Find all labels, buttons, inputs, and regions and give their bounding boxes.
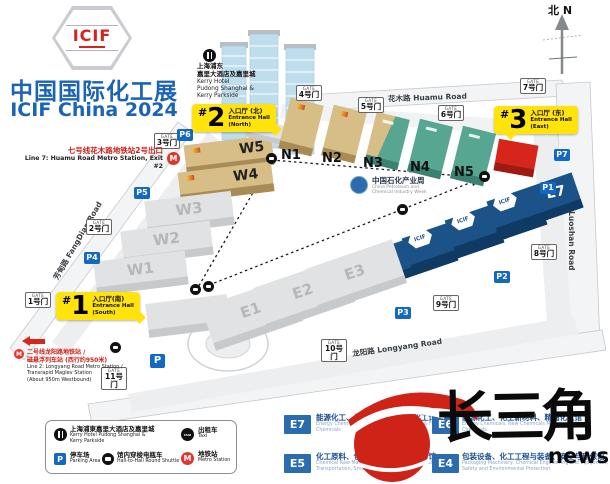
roof-logo <box>339 110 348 117</box>
roof-logo <box>192 147 201 153</box>
legend-taxi-en: Taxi <box>198 434 218 440</box>
hall-label-n4: N4 <box>405 160 435 175</box>
logo-line-bottom <box>66 50 118 51</box>
gate-number: 4号门 <box>297 91 321 99</box>
gate-2: GATE2号门 <box>86 219 112 235</box>
hall-label-n3: N3 <box>358 156 388 171</box>
hall-label: W3 <box>175 198 204 219</box>
gate-5: GATE5号门 <box>358 97 384 113</box>
compass <box>543 14 583 74</box>
entrance-en2: (South) <box>92 310 134 316</box>
legend-shuttle-en: Hall-to-Hall Round Shuttle <box>117 459 179 465</box>
parking-p3: P3 <box>395 307 411 319</box>
gate-10: GATE10号门 <box>321 339 347 362</box>
legend-metro-en: Metro Station <box>198 458 230 464</box>
hall-legend-badge-e5: E5 <box>284 454 311 473</box>
shuttle-stop-icon <box>397 204 408 215</box>
compass-label: 北 N <box>548 2 572 18</box>
metro-icon: M <box>14 349 24 359</box>
kerry-en3: Kerry Parkside <box>197 93 263 100</box>
legend-box: 上海浦東嘉里大酒店及嘉里城 Kerry Hotel Pudong Shangha… <box>45 420 237 474</box>
entrance-number: 1 <box>71 295 89 317</box>
gate-number: 8号门 <box>532 250 556 258</box>
entrance-1-label: # 1 入口厅(南) Entrance Hall (South) <box>56 292 140 320</box>
parking-p4: P4 <box>84 252 100 264</box>
metro-icon: M <box>181 452 194 465</box>
hall-label: W2 <box>152 228 181 249</box>
taxi-icon: TAXI <box>181 428 194 441</box>
venue-map: ICIF 中国国际化工展 ICIF China 2024 七号线花木路地铁站2号… <box>0 0 610 484</box>
hall-label: W5 <box>238 139 265 158</box>
entrance-hash: # <box>500 109 509 120</box>
petro-cn: 中国石化产业周 <box>372 176 427 185</box>
hall-label: W1 <box>126 258 155 279</box>
kerry-note: 上海浦东 嘉里大酒店及嘉里城 Kerry Hotel Pudong Shangh… <box>197 44 263 100</box>
metro-icon: M <box>167 152 180 165</box>
shuttle-stop-icon <box>266 153 277 164</box>
roof-logo <box>186 175 195 181</box>
roof-logo <box>469 133 480 138</box>
line2-note: M 二号线龙阳路地铁站 / 磁悬浮列车站 (西行约950米) Line 2: L… <box>14 336 123 383</box>
kerry-en2: Pudong Shanghai & <box>197 86 263 93</box>
gate-1: GATE1号门 <box>25 292 51 308</box>
parking-icon: P <box>54 453 66 465</box>
parking-p1: P1 <box>540 182 556 194</box>
line2-en3: (About 950m Westbound) <box>27 377 123 383</box>
entrance-hall-east-building <box>494 139 539 177</box>
shuttle-stop-icon <box>190 284 201 295</box>
shuttle-stop-icon <box>203 281 214 292</box>
parking-p7: P7 <box>554 149 570 161</box>
line2-cn1: 二号线龙阳路地铁站 / <box>27 349 123 357</box>
entrance-3-label: # 3 入口厅 (东) Entrance Hall (East) <box>494 106 578 134</box>
hall-label-n2: N2 <box>317 151 347 166</box>
logo-red-bar <box>79 46 105 48</box>
entrance-number: 2 <box>207 107 225 129</box>
restaurant-icon <box>203 49 216 62</box>
parking-p5: P5 <box>134 187 150 199</box>
parking-p6: P6 <box>177 129 193 141</box>
gate-number: 5号门 <box>359 103 383 111</box>
logo-text: ICIF <box>73 28 112 44</box>
shuttle-stop-icon <box>479 171 490 182</box>
gate-6: GATE6号门 <box>438 105 464 121</box>
line7-en: Line 7: Huamu Road Metro Station, Exit #… <box>24 155 163 171</box>
petro-week-logo <box>350 176 368 194</box>
entrance-hash: # <box>198 107 207 118</box>
icif-logo-hex-outer: ICIF <box>52 6 132 70</box>
hall-legend-badge-e7: E7 <box>284 415 311 434</box>
entrance-hash: # <box>62 295 71 306</box>
gate-7: GATE7号门 <box>520 78 546 94</box>
legend-kerry-en1: Kerry Hotel Pudong Shanghai & <box>70 433 155 439</box>
parking-p2: P2 <box>494 271 510 283</box>
kerry-en1: Kerry Hotel <box>197 79 263 86</box>
restaurant-icon <box>54 428 67 441</box>
roof-logo <box>296 103 305 110</box>
legend-kerry-en2: Kerry Parkside <box>70 439 155 445</box>
west-arrow-icon <box>22 336 123 346</box>
petro-en2: Chemical Industry Week <box>372 190 427 195</box>
hall-label-n1: N1 <box>276 148 306 163</box>
entrance-cn: 入口厅 (北) <box>228 108 270 115</box>
gate-number: 10号门 <box>322 345 346 360</box>
petro-week-note: 中国石化产业周 China Petroleum and Chemical Ind… <box>350 176 427 196</box>
gate-number: 7号门 <box>521 84 545 92</box>
entrance-en2: (East) <box>530 124 572 130</box>
line7-cn: 七号线花木路地铁站2号出口 <box>24 146 163 155</box>
gate-number: 6号门 <box>439 111 463 119</box>
parking-main: P <box>150 354 165 368</box>
gate-9: GATE9号门 <box>433 295 459 311</box>
icif-logo-hex-inner: ICIF <box>55 10 129 66</box>
icif-logo: ICIF <box>52 6 132 70</box>
gate-4: GATE4号门 <box>296 85 322 101</box>
shuttle-icon <box>102 453 114 465</box>
gate-number: 9号门 <box>434 301 458 309</box>
legend-parking-en: Parking Area <box>70 459 100 465</box>
roof-logo <box>383 119 394 124</box>
entrance-2-label: # 2 入口厅 (北) Entrance Hall (North) <box>192 104 276 132</box>
roof-logo <box>426 126 437 131</box>
watermark-en: news <box>548 444 609 468</box>
line7-note: 七号线花木路地铁站2号出口 Line 7: Huamu Road Metro S… <box>24 146 180 171</box>
entrance-en2: (North) <box>228 122 270 128</box>
hall-label: E3 <box>342 260 367 284</box>
gate-number: 1号门 <box>26 298 50 306</box>
entrance-cn: 入口厅 (东) <box>530 110 572 117</box>
line2-cn2: 磁悬浮列车站 (西行约950米) <box>27 357 123 365</box>
hall-label: W4 <box>232 166 259 185</box>
gate-number: 2号门 <box>87 225 111 233</box>
entrance-cn: 入口厅(南) <box>92 296 134 303</box>
kerry-cn2: 嘉里大酒店及嘉里城 <box>197 71 263 79</box>
watermark-cn: 长三角 <box>437 388 610 447</box>
gate-8: GATE8号门 <box>531 244 557 260</box>
page-title-en: ICIF China 2024 <box>2 99 186 121</box>
hall-label-n5: N5 <box>449 165 479 180</box>
